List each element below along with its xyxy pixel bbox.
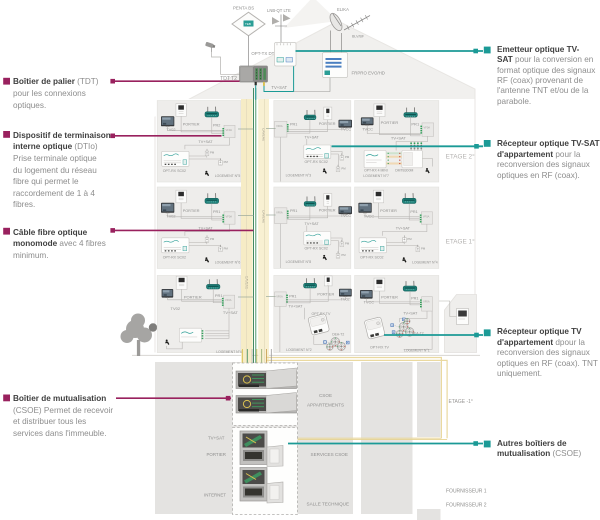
svg-text:PR1: PR1	[410, 210, 417, 214]
svg-text:PORTIER: PORTIER	[207, 452, 226, 457]
svg-text:LOGEMENT N°6: LOGEMENT N°6	[215, 260, 241, 264]
svg-text:ELIKA: ELIKA	[337, 7, 349, 12]
svg-text:TV+SAT: TV+SAT	[396, 226, 411, 230]
svg-text:PM: PM	[341, 167, 346, 171]
svg-text:PR1: PR1	[411, 296, 418, 300]
svg-text:PORTIER: PORTIER	[184, 295, 202, 300]
svg-text:FOURNISSEUR 2: FOURNISSEUR 2	[446, 503, 487, 509]
svg-text:TV+SAT: TV+SAT	[288, 305, 303, 309]
svg-text:FOURNISSEUR 1: FOURNISSEUR 1	[446, 489, 487, 495]
svg-text:TVCC: TVCC	[364, 300, 375, 304]
svg-text:OPT-RX SC02: OPT-RX SC02	[305, 246, 328, 250]
svg-text:PENTA BS: PENTA BS	[233, 6, 254, 11]
svg-text:ETAGE 1°: ETAGE 1°	[446, 237, 476, 245]
svg-text:OPT-RX SC02: OPT-RX SC02	[360, 256, 383, 260]
svg-text:LOGEMENT N°2: LOGEMENT N°2	[286, 348, 312, 352]
svg-text:PR1: PR1	[289, 295, 296, 299]
svg-text:PORTIER: PORTIER	[183, 209, 200, 213]
svg-text:OPT-RX SC02: OPT-RX SC02	[163, 169, 186, 173]
svg-text:SALLE TECHNIQUE: SALLE TECHNIQUE	[307, 502, 350, 507]
svg-text:VF0A: VF0A	[424, 126, 431, 130]
svg-text:PORTIER: PORTIER	[183, 123, 200, 127]
svg-text:OPT-RX 4 MINI: OPT-RX 4 MINI	[364, 168, 388, 172]
svg-text:CSOE: CSOE	[319, 393, 332, 398]
svg-text:LOGEMENT N°1: LOGEMENT N°1	[404, 349, 430, 353]
svg-text:OPT-RX SC02: OPT-RX SC02	[305, 160, 328, 164]
svg-text:VF0A: VF0A	[276, 124, 283, 128]
svg-text:VF0A: VF0A	[276, 211, 283, 215]
svg-text:PR1: PR1	[290, 209, 297, 213]
svg-text:PORTIER: PORTIER	[319, 209, 336, 213]
svg-text:PR1: PR1	[411, 122, 420, 127]
svg-text:TV+SAT: TV+SAT	[198, 140, 213, 144]
svg-text:TV+SAT: TV+SAT	[403, 311, 418, 315]
svg-text:CAVEAU: CAVEAU	[262, 128, 266, 142]
svg-text:PORTIER: PORTIER	[381, 295, 398, 299]
svg-text:PR2: PR2	[213, 123, 220, 127]
svg-text:VF0A: VF0A	[423, 215, 430, 219]
svg-text:CAVEAU: CAVEAU	[262, 210, 266, 224]
svg-text:TVCC: TVCC	[362, 127, 373, 132]
svg-text:OPT-RX SC02: OPT-RX SC02	[163, 256, 186, 260]
svg-text:TEB: TEB	[245, 22, 251, 26]
svg-text:LOGEMENT N°7: LOGEMENT N°7	[363, 174, 389, 178]
svg-text:BLV/BF: BLV/BF	[352, 35, 365, 39]
svg-text:APPARTEMENTS: APPARTEMENTS	[307, 403, 344, 408]
svg-text:VF0A: VF0A	[226, 215, 233, 219]
svg-text:PM: PM	[210, 237, 215, 241]
svg-text:VF0A: VF0A	[225, 298, 232, 302]
svg-text:VF0A: VF0A	[423, 300, 430, 304]
svg-text:TV+SAT: TV+SAT	[208, 436, 225, 441]
svg-text:TV+SAT: TV+SAT	[223, 310, 238, 315]
svg-text:LOGEMENT N°4: LOGEMENT N°4	[216, 350, 242, 354]
svg-text:PORTIER: PORTIER	[380, 209, 397, 213]
svg-text:PORTIER: PORTIER	[319, 122, 336, 126]
svg-text:PORTIER: PORTIER	[317, 292, 334, 296]
svg-text:PM: PM	[224, 160, 229, 164]
svg-text:INTERNET: INTERNET	[204, 493, 226, 498]
svg-text:ETAGE 2°: ETAGE 2°	[446, 153, 476, 161]
svg-text:PM: PM	[421, 246, 426, 250]
svg-text:PR1: PR1	[213, 210, 220, 214]
svg-text:LNB-QT LTE: LNB-QT LTE	[267, 8, 291, 13]
svg-text:ETAGE -1°: ETAGE -1°	[449, 399, 473, 405]
svg-text:LOGEMENT N°8: LOGEMENT N°8	[286, 260, 312, 264]
svg-text:PM: PM	[224, 246, 229, 250]
svg-text:PM: PM	[345, 242, 350, 246]
svg-text:PR1: PR1	[215, 293, 224, 298]
svg-text:VF0A: VF0A	[276, 295, 283, 299]
svg-text:SERVICES CSOE: SERVICES CSOE	[311, 452, 348, 457]
svg-text:OPT-TX DT: OPT-TX DT	[251, 51, 274, 56]
svg-text:FRPRO EVO/HD: FRPRO EVO/HD	[352, 71, 385, 76]
svg-text:PM: PM	[345, 155, 350, 159]
svg-text:PM: PM	[210, 151, 215, 155]
svg-text:TV+SAT: TV+SAT	[271, 85, 287, 90]
svg-text:TV02: TV02	[171, 306, 181, 311]
svg-text:TV+SAT: TV+SAT	[391, 136, 406, 141]
svg-text:LOGEMENT N°5: LOGEMENT N°5	[215, 174, 241, 178]
svg-text:DEA-T2: DEA-T2	[332, 333, 344, 337]
svg-text:LOGEMENT N°4: LOGEMENT N°4	[412, 260, 438, 264]
svg-text:PORTIER: PORTIER	[381, 120, 399, 125]
svg-text:LOGEMENT N°3: LOGEMENT N°3	[286, 173, 312, 177]
svg-text:VF0A: VF0A	[226, 128, 233, 132]
svg-text:PR1: PR1	[290, 123, 297, 127]
svg-text:PM: PM	[341, 253, 346, 257]
svg-text:OPT-RX TV: OPT-RX TV	[370, 346, 390, 350]
svg-text:PM: PM	[407, 237, 412, 241]
svg-text:DMTB300M: DMTB300M	[395, 168, 413, 172]
